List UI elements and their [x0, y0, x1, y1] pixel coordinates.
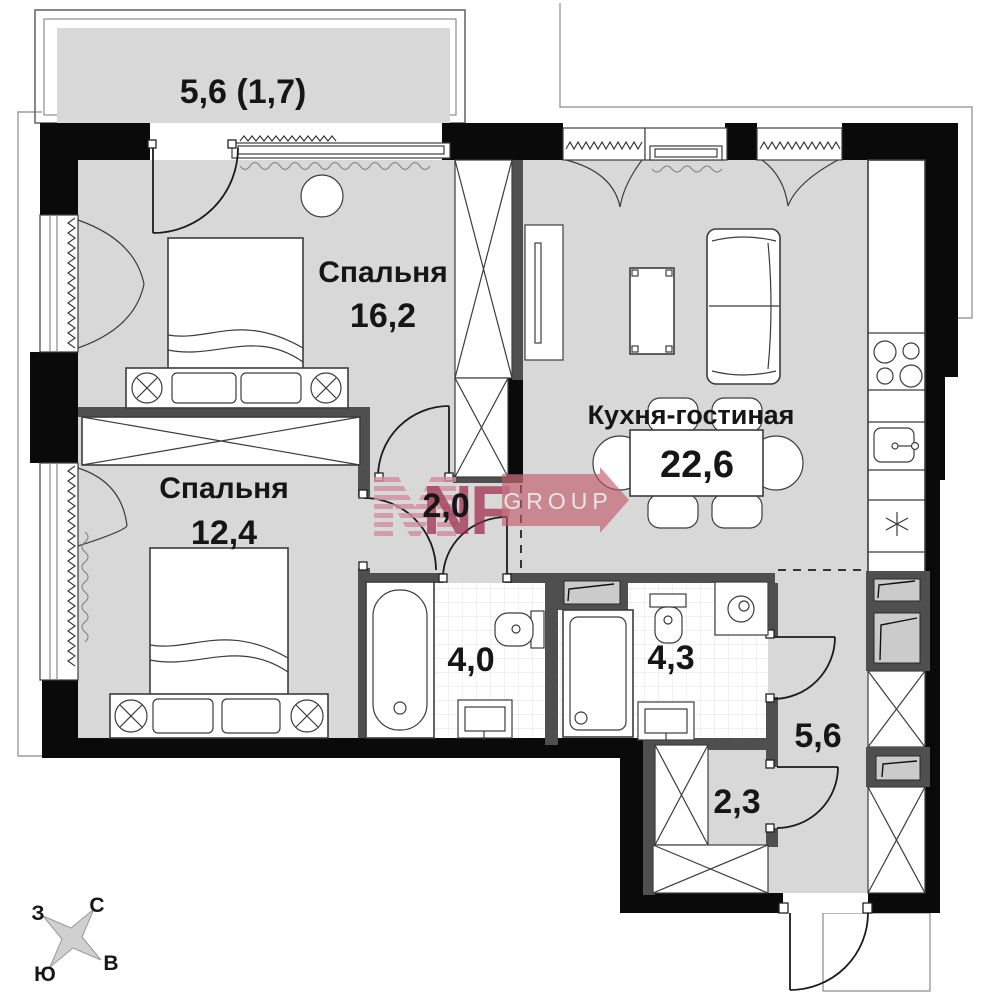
balcony-label: 5,6 (1,7) [180, 73, 307, 111]
corridor-area: 5,6 [794, 717, 841, 755]
kitchen-living-area: 22,6 [660, 444, 734, 486]
compass-west: З [31, 902, 44, 925]
chair [648, 494, 698, 528]
hallway-area: 2,0 [422, 487, 469, 525]
sink-icon [458, 700, 512, 740]
bathtub-icon [366, 582, 434, 738]
kitchen-sink-icon [874, 428, 919, 462]
bathroom-1-area: 4,0 [447, 641, 494, 679]
chair [712, 494, 762, 528]
kitchen-living-name: Кухня-гостиная [588, 400, 795, 430]
compass-south: Ю [34, 963, 56, 986]
ventilation-shaft [455, 160, 512, 477]
toilet-icon [650, 594, 686, 643]
compass-east: В [103, 952, 118, 975]
bathroom-2-area: 4,3 [647, 639, 694, 677]
compass-north: С [89, 894, 104, 917]
bedroom-2-name: Спальня [159, 472, 289, 505]
tv-icon [535, 243, 541, 343]
wardrobe-room-area: 2,3 [713, 783, 760, 821]
floor-plan-page: NF GROUP 5,6 (1,7) Спальня 16,2 Спальня … [0, 0, 1000, 1000]
wardrobe-bedroom-2 [82, 417, 360, 465]
bedroom-1-name: Спальня [318, 256, 448, 289]
toilet-icon [495, 611, 544, 648]
tv-unit [525, 225, 563, 360]
sink-icon [638, 702, 694, 740]
watermark-suffix: GROUP [503, 488, 612, 514]
ceiling-light-icon [301, 175, 343, 217]
bedroom-2-area: 12,4 [191, 514, 257, 552]
duct-niche [556, 573, 628, 610]
bedroom-1-area: 16,2 [350, 297, 416, 335]
hall-closets [866, 571, 930, 893]
kitchen-counter [868, 160, 925, 572]
sofa [707, 229, 780, 384]
coffee-table [630, 268, 674, 354]
shower-tub-icon [563, 610, 633, 737]
washing-machine-icon [715, 582, 768, 635]
floor-plan: NF GROUP 5,6 (1,7) Спальня 16,2 Спальня … [0, 0, 1000, 1000]
entrance-threshold [783, 895, 868, 913]
